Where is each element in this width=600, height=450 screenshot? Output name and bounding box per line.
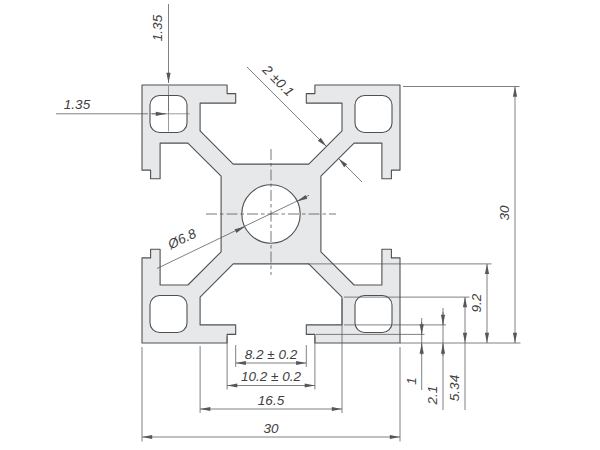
dim-overall-height: 30 — [400, 87, 521, 344]
dim-label-cavity-width: 16.5 — [258, 393, 285, 408]
dim-label-depth-lip: 2.1 — [425, 386, 440, 406]
drawing-canvas: 1.35 1.35 2 ±0.1 Ø6.8 30 9.2 5.34 — [0, 0, 600, 450]
dim-label-overall-width: 30 — [263, 421, 279, 436]
dimension-line — [339, 159, 363, 183]
extrusion-profile-drawing: 1.35 1.35 2 ±0.1 Ø6.8 30 9.2 5.34 — [0, 0, 600, 450]
corner-channel-bottom-right — [355, 296, 392, 333]
dim-label-wall-side: 1.35 — [64, 97, 91, 112]
corner-channel-top-right — [355, 96, 392, 133]
corner-channel-bottom-left — [150, 296, 187, 333]
dim-label-depth-transition: 5.34 — [447, 375, 462, 401]
dim-label-web-thickness: 2 ±0.1 — [259, 62, 297, 100]
dim-label-depth-counterbore: 1 — [404, 377, 419, 385]
dim-label-slot-depth: 9.2 — [469, 293, 484, 312]
dim-label-slot-recess: 10.2 ± 0.2 — [241, 369, 301, 384]
dim-label-overall-height: 30 — [497, 205, 512, 221]
dim-label-wall-top: 1.35 — [150, 14, 165, 41]
dim-label-center-bore: Ø6.8 — [165, 226, 199, 253]
dim-label-slot-neck: 8.2 ± 0.2 — [245, 347, 298, 362]
